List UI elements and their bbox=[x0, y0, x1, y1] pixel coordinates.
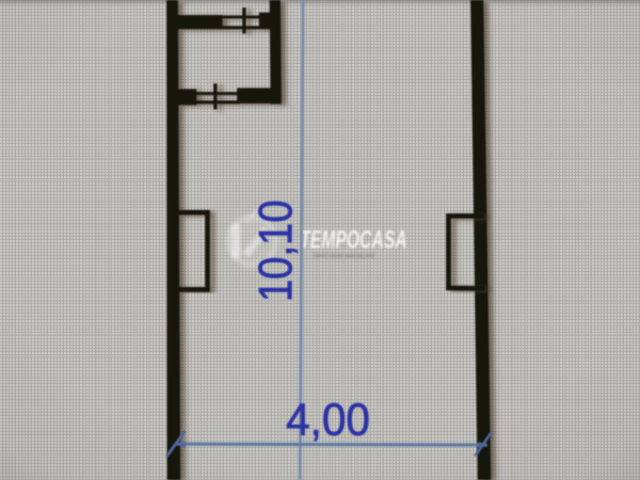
svg-text:10,10: 10,10 bbox=[249, 200, 302, 302]
svg-text:4,00: 4,00 bbox=[286, 394, 370, 445]
svg-text:TEMPOCASA: TEMPOCASA bbox=[300, 226, 407, 254]
svg-text:FRANCHISING IMMOBILIARE: FRANCHISING IMMOBILIARE bbox=[313, 253, 375, 260]
